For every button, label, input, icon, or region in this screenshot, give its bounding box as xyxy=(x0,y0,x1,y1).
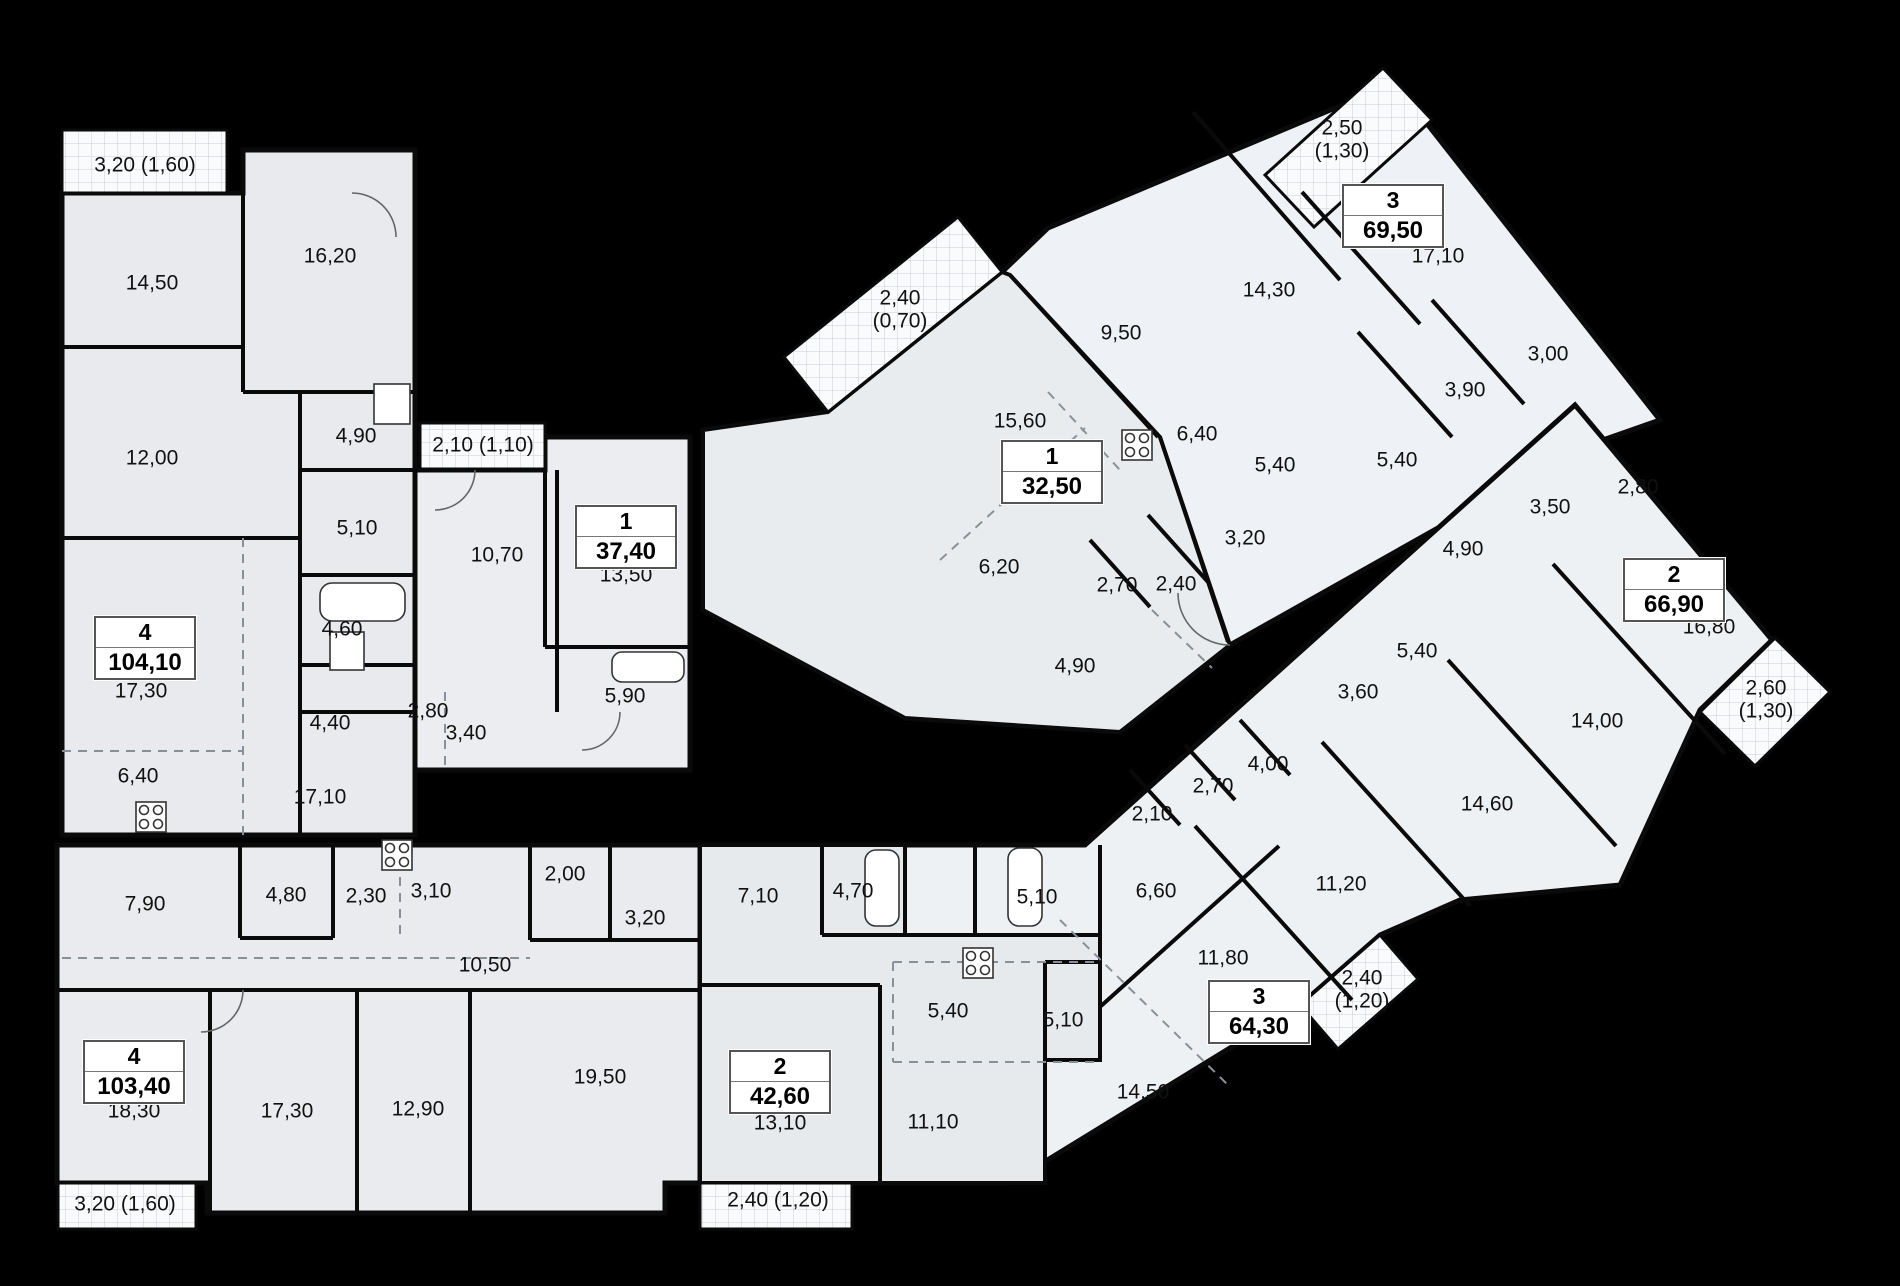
floor-plan-page: 3,20 (1,60)14,5016,2012,004,905,104,6017… xyxy=(0,0,1900,1286)
apt-37-outline xyxy=(415,437,690,770)
floor-plan-drawing xyxy=(0,0,1900,1286)
bathtub-icon xyxy=(320,583,405,621)
stove-icon xyxy=(382,840,412,870)
apt-103-outline xyxy=(57,845,700,1213)
shower-icon xyxy=(330,632,364,670)
balcony xyxy=(58,1183,196,1229)
shower-icon xyxy=(374,384,410,424)
balcony xyxy=(420,423,545,469)
balcony xyxy=(700,1183,852,1229)
bathtub-icon xyxy=(865,850,899,926)
stove-icon xyxy=(1122,430,1152,460)
bathtub-icon xyxy=(1008,848,1042,926)
stove-icon xyxy=(136,802,166,832)
stove-icon xyxy=(963,948,993,978)
apt-104-outline xyxy=(62,150,415,835)
balcony xyxy=(62,130,227,193)
bathtub-icon xyxy=(612,652,684,682)
